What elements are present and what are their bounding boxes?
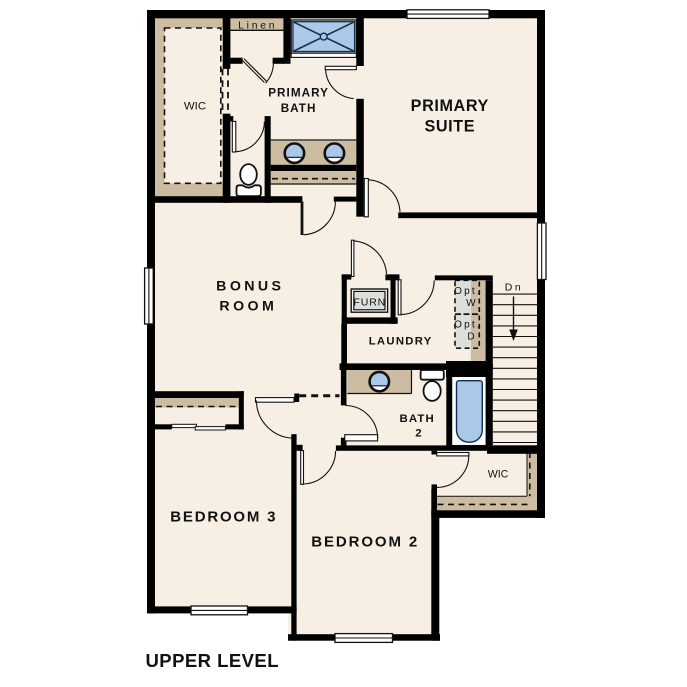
svg-text:WIC: WIC bbox=[184, 101, 206, 113]
svg-text:Linen: Linen bbox=[238, 21, 277, 32]
svg-text:BEDROOM 2: BEDROOM 2 bbox=[311, 533, 419, 550]
svg-text:D: D bbox=[467, 332, 474, 343]
svg-text:W: W bbox=[466, 298, 476, 309]
svg-text:Opt.: Opt. bbox=[454, 320, 482, 331]
svg-text:FURN: FURN bbox=[353, 296, 386, 308]
svg-text:SUITE: SUITE bbox=[424, 118, 475, 136]
svg-text:BEDROOM 3: BEDROOM 3 bbox=[170, 508, 277, 525]
svg-text:PRIMARY: PRIMARY bbox=[268, 86, 329, 99]
svg-text:2: 2 bbox=[415, 427, 423, 439]
svg-text:WIC: WIC bbox=[488, 469, 509, 481]
svg-text:BATH: BATH bbox=[400, 413, 435, 425]
svg-text:BONUS: BONUS bbox=[216, 278, 284, 294]
svg-text:BATH: BATH bbox=[281, 102, 317, 115]
svg-text:Dn: Dn bbox=[505, 282, 524, 294]
svg-text:UPPER LEVEL: UPPER LEVEL bbox=[146, 650, 279, 671]
svg-text:LAUNDRY: LAUNDRY bbox=[369, 336, 433, 348]
svg-text:ROOM: ROOM bbox=[219, 299, 277, 315]
svg-text:PRIMARY: PRIMARY bbox=[411, 97, 489, 115]
svg-text:Opt.: Opt. bbox=[454, 286, 482, 297]
